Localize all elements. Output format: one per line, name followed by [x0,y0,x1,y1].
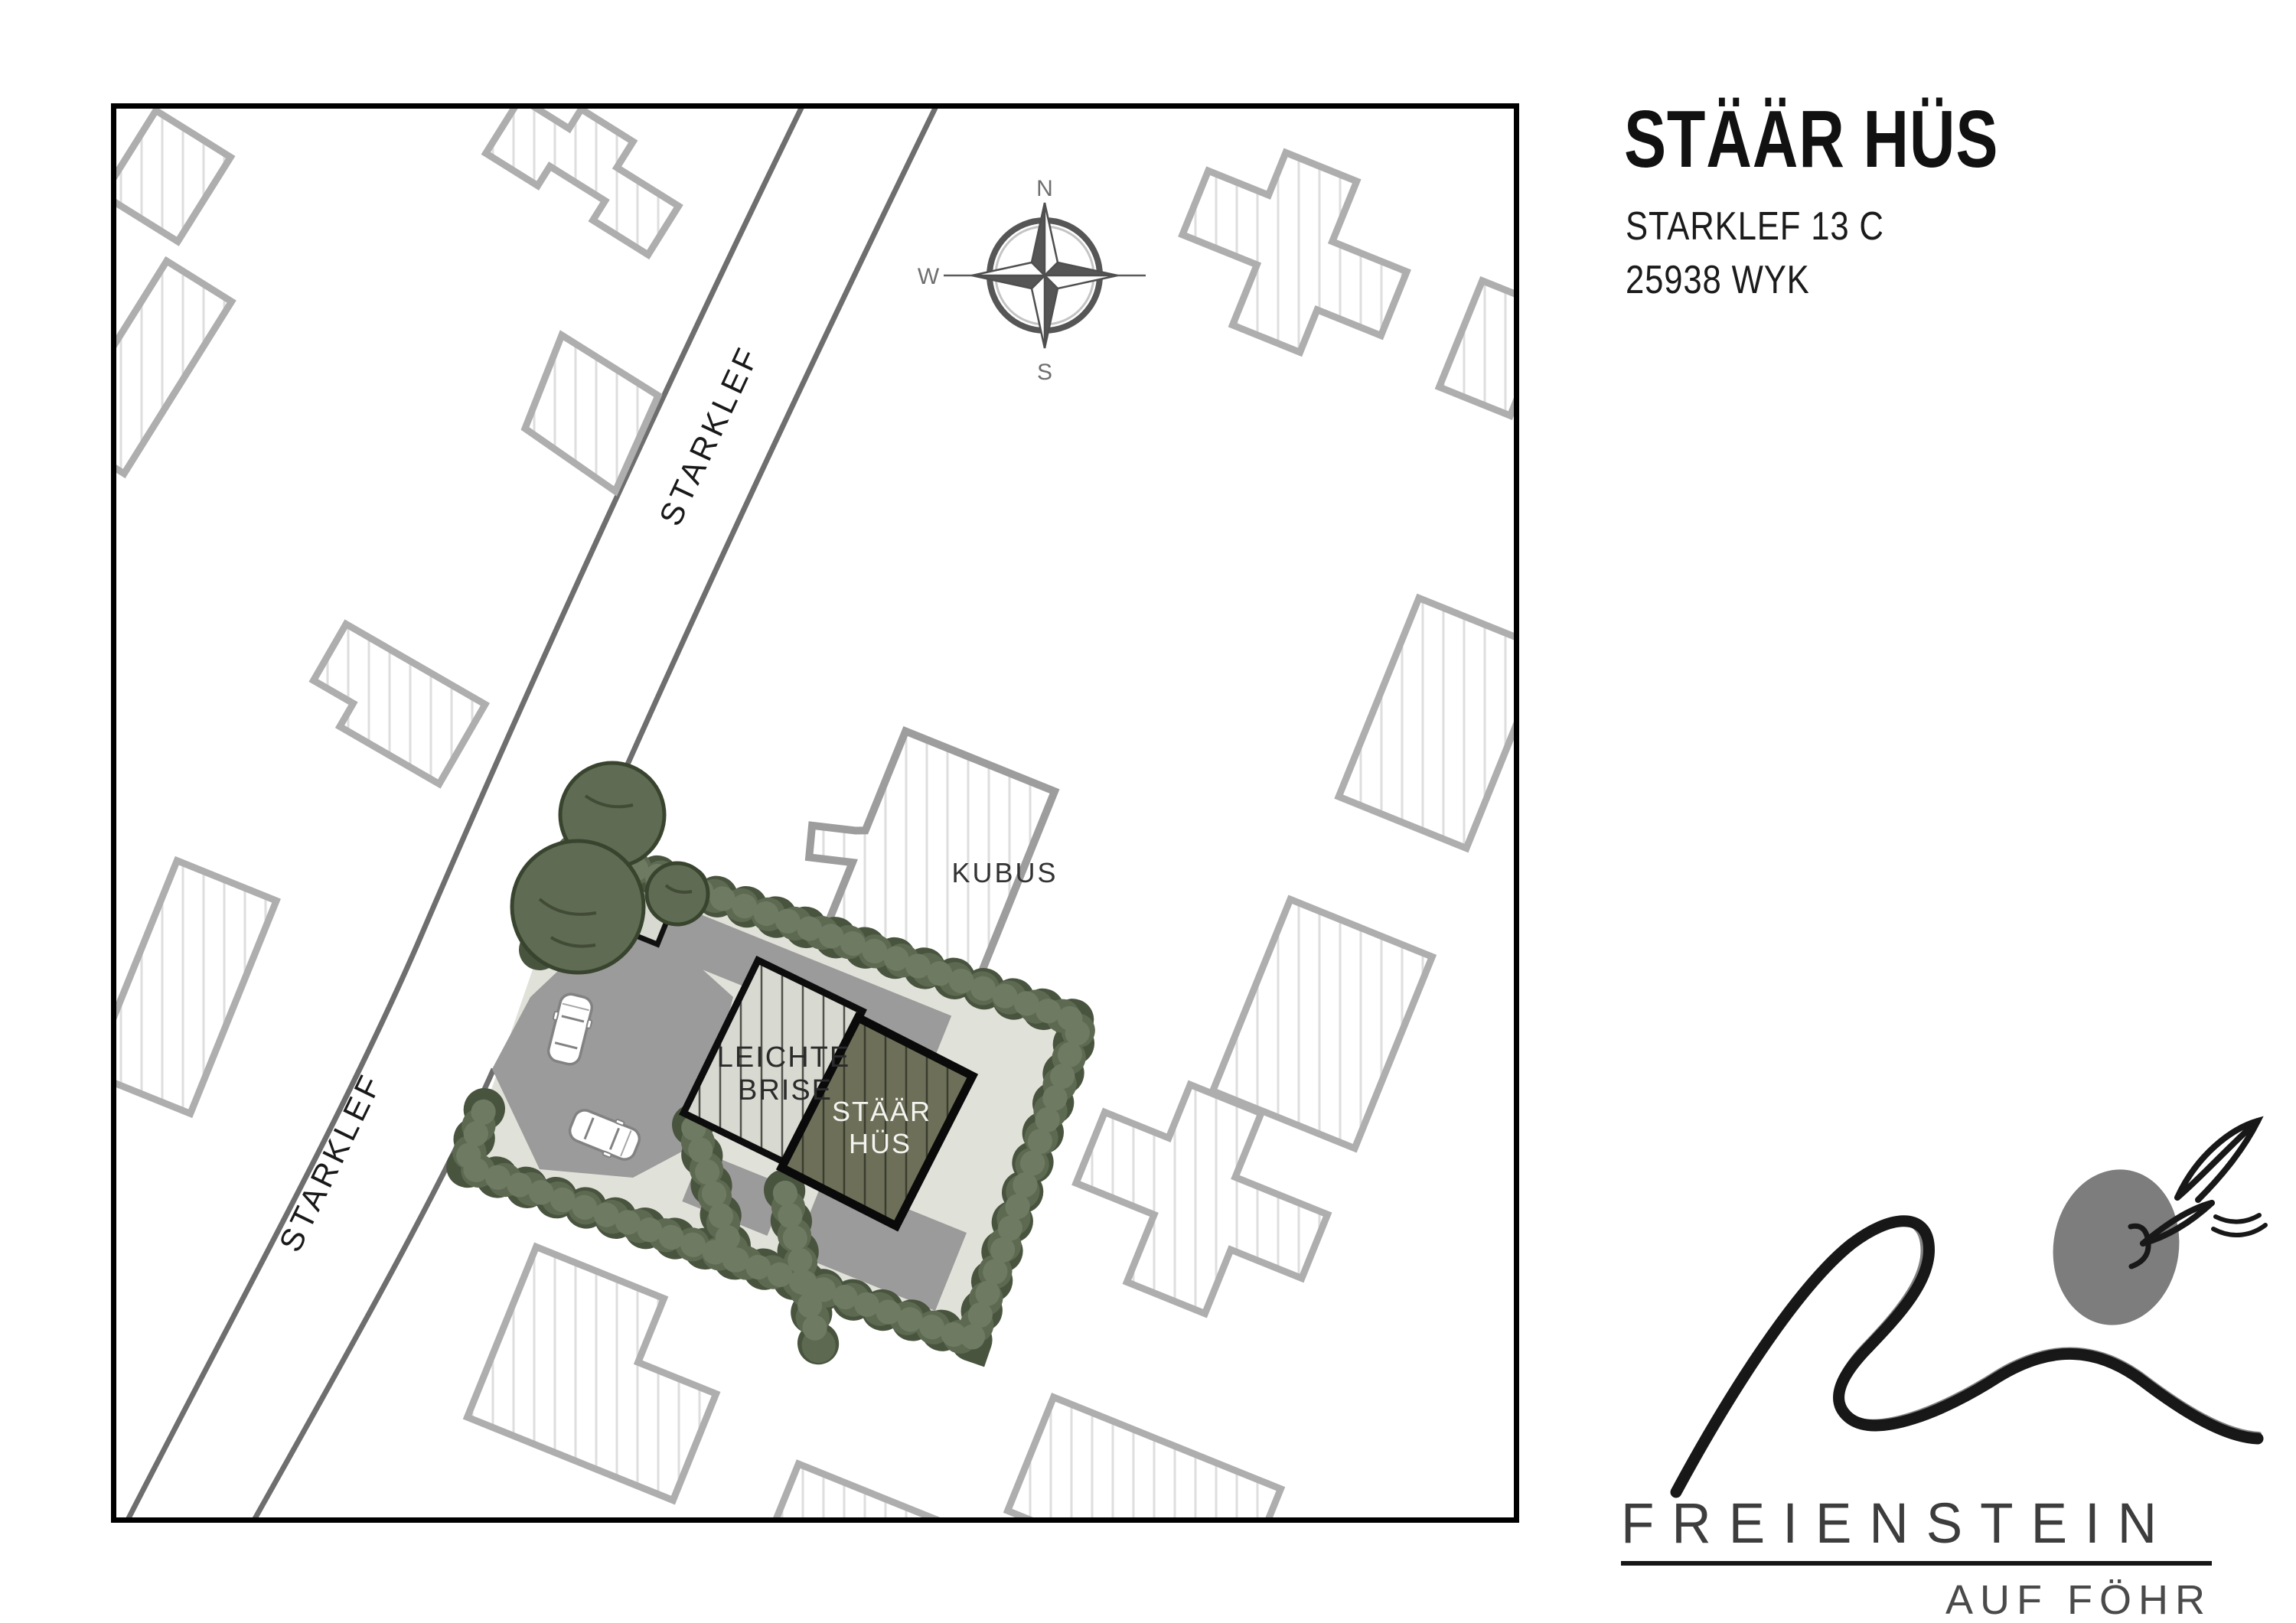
logo-tagline: AUF FÖHR [1621,1576,2212,1623]
address-line-2: 25938 WYK [1626,257,1810,303]
neighbor-building [111,861,276,1114]
logo-divider [1621,1561,2212,1566]
neighbor-building [111,110,230,241]
kubus-label: KUBUS [951,857,1058,888]
tree-icon [512,841,644,973]
compass-west-label: W [918,264,940,289]
site-plan-page: N S W STARKLEF STARKLEF KUBUS LEICHTE BR… [0,0,2296,1623]
neighbor-building [111,261,232,474]
compass-rose: N S W [918,176,1146,385]
neighbor-building [1440,281,1520,416]
staar-hus-label-line2: HÜS [849,1128,912,1159]
compass-north-label: N [1036,176,1053,201]
neighbor-building [1182,152,1407,352]
leichte-brise-label-line1: LEICHTE [717,1041,850,1074]
staar-hus-label-line1: STÄÄR [832,1096,931,1127]
compass-star [972,203,1117,348]
address-line-1: STARKLEF 13 C [1626,204,1884,249]
page-title: STÄÄR HÜS [1624,93,1998,186]
road-edge-left [126,103,804,1523]
neighbor-building [468,1247,716,1500]
leichte-brise-label-line2: BRISE [738,1074,833,1106]
compass-south-label: S [1037,360,1052,385]
neighbor-building [1008,1397,1281,1523]
logo-wordmark: FREIENSTEIN [1621,1491,2209,1556]
neighbor-building [314,624,485,784]
street-label-lower: STARKLEF [272,1067,390,1257]
neighbor-building [525,335,658,491]
neighbor-building [1339,598,1519,849]
tree-icon [647,863,708,924]
neighbor-building [486,103,679,255]
neighbor-building [755,1464,997,1523]
logo-blob [2043,1162,2190,1334]
site-plan-map: N S W STARKLEF STARKLEF KUBUS LEICHTE BR… [111,103,1519,1523]
freienstein-logo-drawing [1645,1102,2273,1500]
